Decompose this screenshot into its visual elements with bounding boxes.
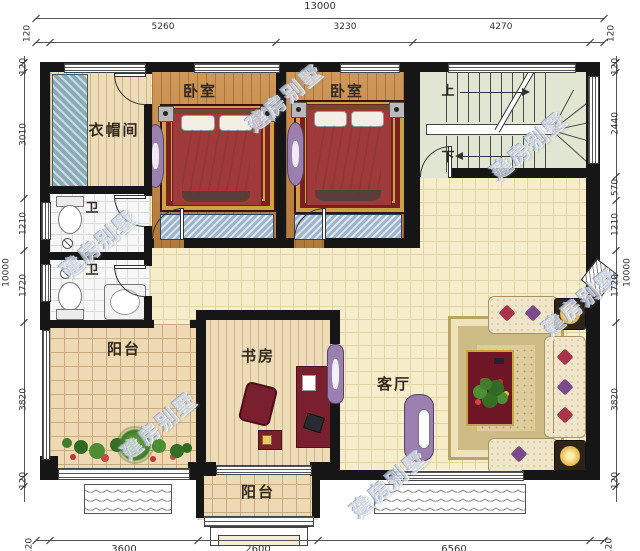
wall-bedroom-middle-bottom-a [284,238,294,248]
wall-study-bottom-r [310,462,340,476]
window-bath-lower [41,264,51,302]
wall-bedroom-middle-bottom-b [324,238,404,248]
dim-right-seg6: 120 [611,464,622,498]
window-bedroom-left [194,63,280,73]
dim-bottom-seg3: 6560 [411,544,497,551]
lamp-table-bottom [554,440,586,472]
dim-top-seg3: 4270 [458,22,544,32]
tea-set [262,435,272,445]
stairs-up-label: 上 [438,82,458,102]
coffee-table [466,350,514,426]
sofa-seat-line [553,341,554,433]
dim-top-seg1: 5260 [120,22,206,32]
dim-line [36,42,604,43]
room-label-bath-upper: 卫 [80,199,104,219]
dim-line [36,540,604,541]
room-label-cloakroom: 衣帽间 [84,120,144,140]
window-bath-upper [41,202,51,240]
dim-top-120-left: 120 [23,17,34,51]
dim-right-total: 10000 [623,256,634,290]
mirror [152,143,159,169]
stair-up-arrow-line [460,92,522,93]
cushion [499,305,516,322]
study-door-panel [332,359,339,389]
stairs-down-label: 下 [438,148,458,168]
paper [302,375,316,391]
main-sofa [544,336,586,438]
dim-left-seg3: 1720 [19,269,30,303]
dim-right-seg2: 570 [611,171,622,205]
toilet-tank [56,309,84,320]
dim-top-120-right: 120 [607,17,618,51]
dim-top-seg2: 3230 [302,22,388,32]
dim-right-seg5: 3820 [611,383,622,417]
bedroom-middle-bed [306,104,392,206]
wall-bedroom-middle-right [404,62,420,248]
cloakroom-closet [52,74,88,190]
dim-bottom-seg1: 3600 [81,544,167,551]
floor-plan: 衣帽间 卧室 卧室 卫 卫 阳台 书房 客厅 阳台 上 下 建房别墅 建房别墅 … [0,0,640,551]
remote [494,358,504,364]
room-label-balcony-left: 阳台 [82,339,166,359]
room-label-study: 书房 [226,346,290,366]
wall-bath-balcony [50,320,154,328]
dim-right-seg3: 1210 [611,208,622,242]
railing-balcony-left-front [58,468,190,480]
window-stairs-right [588,76,599,164]
single-sofa-bottom [488,438,558,474]
quilt [315,125,381,196]
wall-cloak-bath [50,186,144,194]
nightstand [389,102,405,118]
dim-left-seg5: 120 [19,464,30,498]
study-side-table [258,430,282,450]
wall-study-right-b [330,402,340,468]
wall-bedroom-left-bottom-a [144,238,154,248]
railing-balcony-left-side [42,330,50,460]
tv-screen [418,409,430,449]
wall-bedroom-left-bottom-b [184,238,284,248]
wall-study-bottom-l [196,462,216,476]
stair-up-arrowhead [522,88,530,96]
dim-bottom-120-left: 120 [25,530,36,551]
wall-study-top [196,310,340,320]
blanket-end [182,191,250,202]
cushion [557,379,574,396]
study-door [327,344,344,404]
nightstand [158,106,174,122]
window-study-bottom [216,465,312,475]
room-label-living: 客厅 [366,374,422,394]
blanket-end [315,190,381,201]
wall-cloak-right [144,104,152,196]
dim-bottom-120-right: 120 [605,530,616,551]
dim-right-seg1: 2440 [611,107,622,141]
planter-flowers [62,438,72,448]
dim-bottom-seg2: 2600 [215,544,301,551]
dim-line [36,18,604,19]
window-bedroom-middle [340,63,400,73]
window-stairs-top [448,63,576,73]
flower-bouquet [480,378,492,390]
room-label-bedroom-left: 卧室 [172,81,228,101]
cushion [557,407,574,424]
dim-left-seg4: 3820 [19,383,30,417]
dim-left-total: 10000 [2,256,13,290]
room-label-balcony-bottom: 阳台 [216,482,300,502]
toilet-bowl [58,282,82,311]
bedroom-middle-dresser [287,122,304,186]
wall-balcony-bottom-right [312,476,320,518]
wall-bottom-seg2 [522,470,600,480]
room-label-bedroom-middle: 卧室 [319,81,375,101]
dim-right-seg4: 1720 [611,269,622,303]
railing-balcony-bottom-front [204,516,314,527]
wall-study-right-a [330,310,340,344]
laptop [303,413,325,434]
cushion [557,349,574,366]
flower-bed-left [84,484,172,514]
wall-study-left [196,310,206,476]
dim-left-seg1: 3010 [19,118,30,152]
dim-left-seg2: 1210 [19,207,30,241]
dim-right-seg0: 120 [611,50,622,84]
dim-top-total: 13000 [284,1,356,12]
window-cloakroom [64,63,146,73]
dim-left-seg0: 120 [19,50,30,84]
mirror [292,141,299,167]
toilet-bowl [58,205,82,234]
headboard [307,105,391,110]
wall-balcony-bottom-left [196,476,204,518]
cushion [511,446,528,463]
quilt [182,129,250,197]
